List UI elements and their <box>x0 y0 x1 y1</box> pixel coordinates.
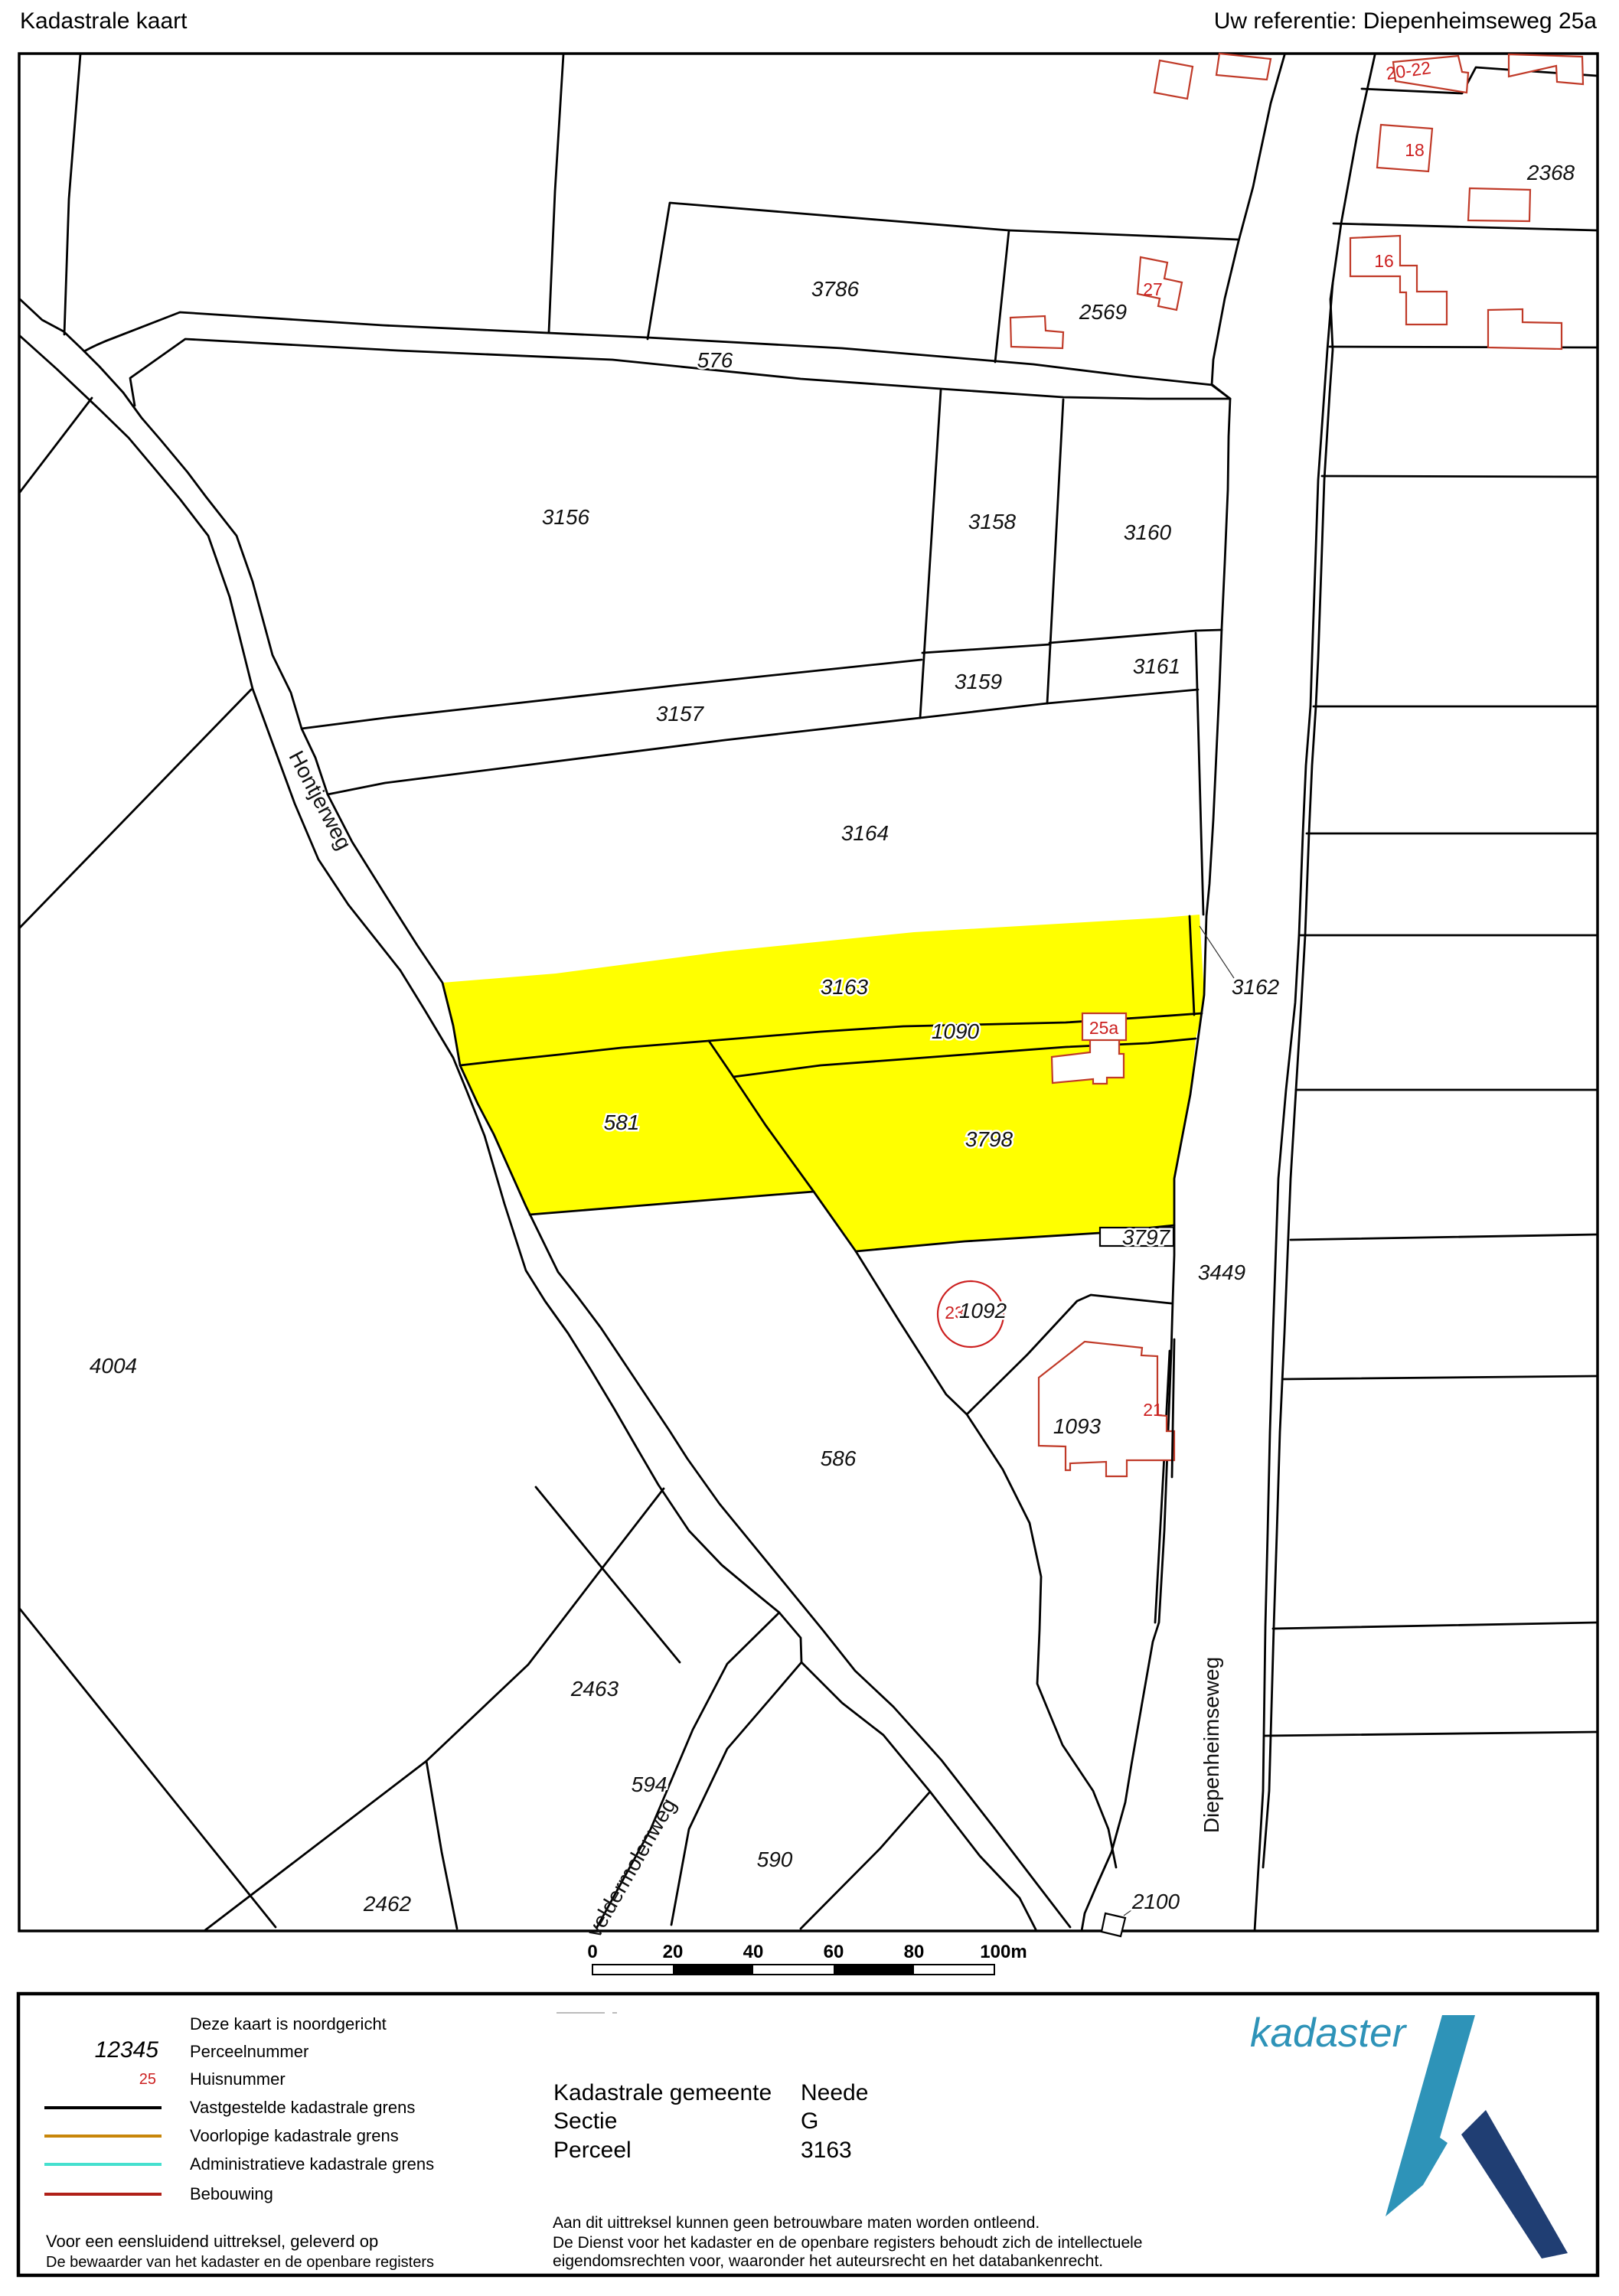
svg-text:16: 16 <box>1374 251 1394 271</box>
svg-text:1093: 1093 <box>1053 1414 1102 1438</box>
svg-text:3164: 3164 <box>841 821 889 845</box>
svg-text:Perceelnummer: Perceelnummer <box>190 2042 308 2061</box>
svg-text:25: 25 <box>139 2071 156 2088</box>
svg-text:3163: 3163 <box>801 2138 852 2163</box>
svg-text:3797: 3797 <box>1122 1225 1171 1249</box>
svg-text:kadaster: kadaster <box>1250 2011 1408 2056</box>
svg-text:60: 60 <box>824 1942 844 1962</box>
svg-text:3159: 3159 <box>955 670 1002 693</box>
svg-text:4004: 4004 <box>90 1354 137 1378</box>
svg-text:3449: 3449 <box>1198 1261 1245 1284</box>
svg-text:Perceel: Perceel <box>553 2138 632 2163</box>
svg-text:Bebouwing: Bebouwing <box>190 2184 273 2203</box>
svg-text:Kadastrale kaart: Kadastrale kaart <box>20 8 188 34</box>
svg-text:2100: 2100 <box>1131 1890 1180 1913</box>
svg-text:3786: 3786 <box>811 277 860 301</box>
svg-text:3161: 3161 <box>1133 654 1180 678</box>
svg-text:21: 21 <box>1143 1400 1163 1420</box>
svg-text:eigendomsrechten voor, waarond: eigendomsrechten voor, waaronder het aut… <box>553 2252 1103 2270</box>
svg-text:3156: 3156 <box>542 505 590 529</box>
svg-text:Neede: Neede <box>801 2080 868 2105</box>
svg-text:De bewaarder van het kadaster: De bewaarder van het kadaster en de open… <box>46 2254 434 2271</box>
svg-text:594: 594 <box>632 1773 668 1796</box>
svg-text:0: 0 <box>587 1942 597 1962</box>
svg-text:2462: 2462 <box>363 1892 412 1916</box>
svg-text:1090: 1090 <box>932 1019 980 1043</box>
svg-text:581: 581 <box>604 1110 640 1134</box>
svg-text:Voor een eensluidend uittrekse: Voor een eensluidend uittreksel, gelever… <box>46 2232 387 2251</box>
svg-text:Aan dit uittreksel kunnen geen: Aan dit uittreksel kunnen geen betrouwba… <box>553 2214 1040 2232</box>
svg-text:27: 27 <box>1143 279 1163 299</box>
svg-text:Administratieve kadastrale gre: Administratieve kadastrale grens <box>190 2154 434 2174</box>
svg-text:2569: 2569 <box>1079 300 1127 324</box>
svg-text:3163: 3163 <box>821 975 869 999</box>
svg-text:40: 40 <box>743 1942 764 1962</box>
svg-text:Huisnummer: Huisnummer <box>190 2069 286 2089</box>
svg-text:12345: 12345 <box>95 2037 159 2063</box>
svg-text:Sectie: Sectie <box>553 2108 617 2134</box>
svg-text:Diepenheimseweg: Diepenheimseweg <box>1200 1657 1223 1833</box>
svg-text:Deze kaart is noordgericht: Deze kaart is noordgericht <box>190 2014 387 2033</box>
svg-text:3162: 3162 <box>1232 975 1280 999</box>
svg-text:Vastgestelde kadastrale grens: Vastgestelde kadastrale grens <box>190 2098 415 2117</box>
svg-text:De Dienst voor het kadaster en: De Dienst voor het kadaster en de openba… <box>553 2234 1142 2252</box>
svg-text:Uw referentie: Diepenheimseweg: Uw referentie: Diepenheimseweg 25a <box>1214 8 1598 34</box>
svg-text:80: 80 <box>904 1942 925 1962</box>
svg-text:3158: 3158 <box>968 510 1017 533</box>
svg-text:25a: 25a <box>1089 1018 1119 1038</box>
svg-text:Kadastrale gemeente: Kadastrale gemeente <box>553 2080 772 2105</box>
svg-text:G: G <box>801 2108 818 2134</box>
svg-text:20: 20 <box>663 1942 684 1962</box>
svg-text:576: 576 <box>697 348 733 372</box>
svg-text:2463: 2463 <box>570 1677 619 1701</box>
svg-text:590: 590 <box>757 1848 793 1871</box>
svg-text:2368: 2368 <box>1526 161 1575 184</box>
svg-text:1092: 1092 <box>959 1299 1007 1322</box>
svg-text:100m: 100m <box>980 1942 1027 1962</box>
svg-text:3798: 3798 <box>965 1127 1014 1151</box>
svg-text:586: 586 <box>821 1446 857 1470</box>
svg-text:18: 18 <box>1405 140 1425 160</box>
svg-text:3160: 3160 <box>1124 520 1172 544</box>
svg-text:3157: 3157 <box>656 702 705 726</box>
svg-text:Voorlopige kadastrale grens: Voorlopige kadastrale grens <box>190 2126 399 2145</box>
